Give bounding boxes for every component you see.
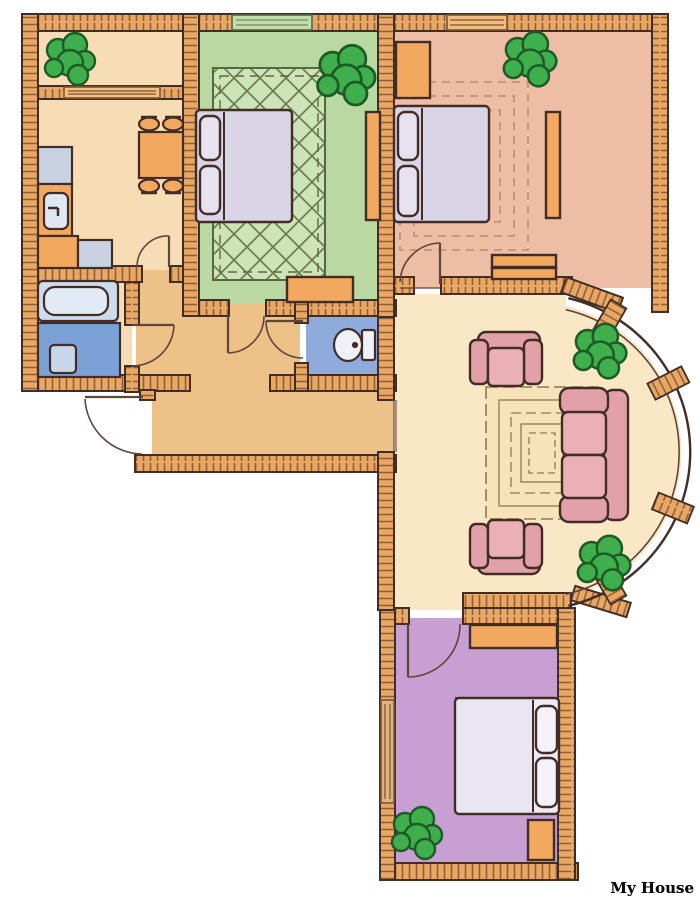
wall-wc-right xyxy=(378,317,394,400)
wall-living-bottom xyxy=(463,593,571,609)
pillow xyxy=(398,112,418,160)
wall-green-bottom-left xyxy=(196,300,229,316)
kitchen-counter-orange xyxy=(38,236,78,268)
purple-bedroom-dresser xyxy=(470,625,557,648)
plant-living-top xyxy=(574,324,627,379)
green-bedroom-bed xyxy=(196,110,292,222)
floor-plan-svg: My House My House xyxy=(0,0,699,904)
pillow xyxy=(398,166,418,216)
kitchen-sink xyxy=(44,193,68,229)
kitchen-stove xyxy=(78,240,112,268)
entry-door xyxy=(85,397,143,454)
green-bedroom-dresser xyxy=(287,277,353,302)
dining-chair xyxy=(139,118,159,131)
wall-purple-top-right xyxy=(463,608,573,624)
pink-bedroom-shelf xyxy=(492,268,556,279)
dining-chair xyxy=(163,180,183,193)
wall-wc-left-top xyxy=(295,301,308,323)
wall-kitchen-bottom-stub xyxy=(170,266,184,282)
purple-bedroom-nightstand xyxy=(528,820,554,860)
wall-hallway-bottom xyxy=(135,455,396,472)
green-bedroom-window xyxy=(232,15,312,30)
bathtub-inner xyxy=(44,287,108,315)
green-bedroom-wardrobe xyxy=(366,112,380,220)
dining-chair xyxy=(163,118,183,131)
plant-pink-bedroom xyxy=(504,32,556,87)
wall-pink-right xyxy=(652,14,668,312)
pink-bedroom-window xyxy=(447,15,507,30)
shower-mat xyxy=(50,345,76,373)
pillow xyxy=(536,758,557,807)
wall-pink-bottom-left xyxy=(392,277,414,294)
armchair-top xyxy=(470,332,542,386)
toilet-button xyxy=(353,343,357,347)
pink-bedroom-wardrobe xyxy=(546,112,560,218)
wall-living-left xyxy=(378,452,394,610)
toilet-tank xyxy=(362,330,375,360)
wall-top-left xyxy=(22,14,198,31)
sofa xyxy=(560,388,628,522)
purple-bedroom-bed xyxy=(455,698,559,814)
wall-wc-left-bottom xyxy=(295,363,308,391)
floor-plan-page: My House My House xyxy=(0,0,699,904)
wall-purple-bottom xyxy=(380,863,578,880)
kitchen-counter-gray xyxy=(38,147,72,184)
pink-bedroom-shelf xyxy=(492,255,556,267)
pink-bedroom-bed xyxy=(394,106,489,222)
plan-title-overlay: My House xyxy=(610,879,694,897)
dining-chair xyxy=(139,180,159,193)
pink-bedroom-dresser xyxy=(396,42,430,98)
pillow xyxy=(536,706,557,753)
pillow xyxy=(200,166,220,214)
wall-bathroom-right-top xyxy=(125,282,139,325)
wall-top-pink xyxy=(384,14,668,31)
balcony-window xyxy=(64,87,160,98)
dining-table xyxy=(139,132,183,178)
plant-purple-bedroom xyxy=(392,807,442,859)
wall-purple-right xyxy=(558,608,575,880)
armchair-bottom xyxy=(470,520,542,574)
wall-entry-stub xyxy=(140,390,155,400)
pillow xyxy=(200,116,220,160)
purple-bedroom-window xyxy=(381,700,394,803)
plant-green-bedroom xyxy=(318,45,376,105)
plant-living-bottom xyxy=(578,536,631,591)
wall-left-outer xyxy=(22,14,38,391)
plant-balcony xyxy=(45,33,95,85)
wall-bathroom-right-bottom xyxy=(125,366,139,392)
